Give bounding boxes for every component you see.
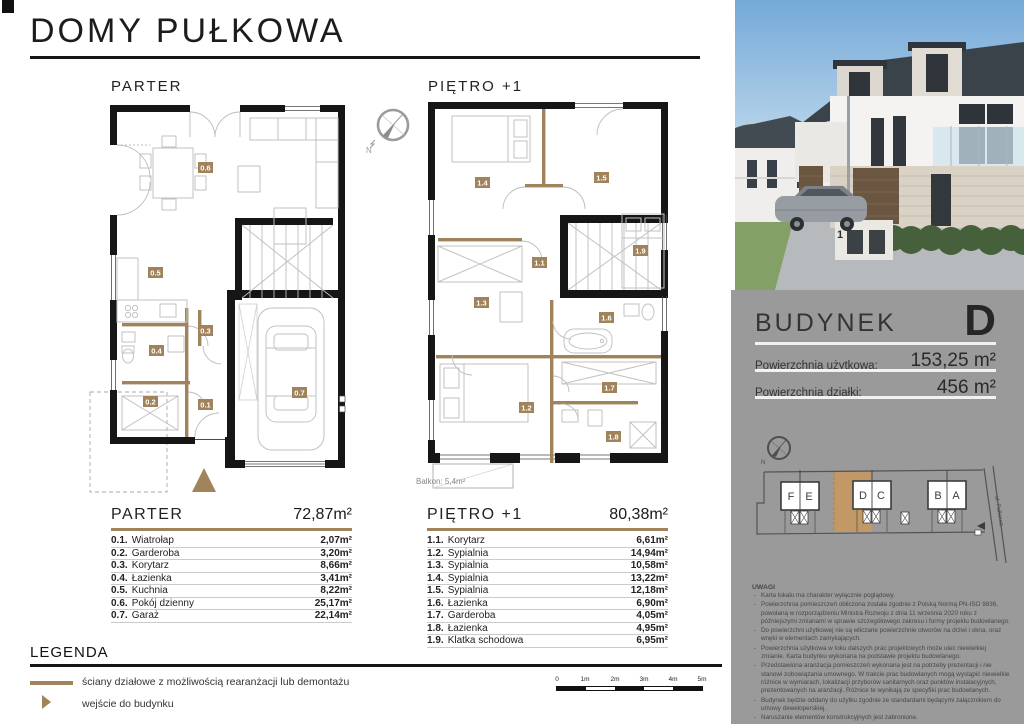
svg-text:0.7: 0.7 bbox=[294, 389, 304, 398]
partition-walls bbox=[122, 308, 201, 437]
scale-label: 4m bbox=[668, 676, 677, 683]
title-rule bbox=[30, 56, 700, 59]
room-tag: 1.7 bbox=[602, 382, 617, 393]
list-item: Do powierzchni użytkowej nie są wliczane… bbox=[752, 627, 1010, 644]
scale-bar-strip bbox=[556, 686, 703, 691]
list-item: Powierzchnia pomieszczeń obliczona zosta… bbox=[752, 601, 1010, 626]
summary-total-area: 72,87m² bbox=[293, 506, 352, 524]
panel-rule bbox=[755, 369, 996, 372]
room-tag: 1.5 bbox=[594, 172, 609, 183]
building-header: BUDYNEK D bbox=[755, 304, 996, 338]
garage bbox=[239, 304, 324, 450]
house-number: 1 bbox=[837, 229, 843, 241]
svg-text:1.3: 1.3 bbox=[476, 299, 486, 308]
site-plan: N bbox=[739, 426, 1019, 578]
sofa-tv bbox=[238, 118, 338, 244]
svg-text:1.6: 1.6 bbox=[601, 314, 611, 323]
corner-mark bbox=[2, 0, 14, 13]
scale-label: 1m bbox=[580, 676, 589, 683]
entrance-arrow-swatch bbox=[42, 695, 51, 709]
notes-list: Karta lokalu ma charakter wyłącznie pogl… bbox=[752, 592, 1010, 722]
site-compass-north-label: N bbox=[761, 460, 765, 466]
table-row: 0.5.Kuchnia8,22m² bbox=[111, 585, 352, 598]
table-row: 1.4.Sypialnia13,22m² bbox=[427, 573, 668, 586]
scale-label: 3m bbox=[639, 676, 648, 683]
svg-text:1.9: 1.9 bbox=[635, 247, 645, 256]
parter-title: PARTER bbox=[111, 78, 182, 95]
partition-wall-swatch bbox=[30, 681, 73, 685]
room-tag: 0.7 bbox=[292, 387, 307, 398]
table-row: 1.7.Garderoba4,05m² bbox=[427, 610, 668, 623]
table-row: 0.6.Pokój dzienny25,17m² bbox=[111, 598, 352, 611]
panel-rule bbox=[755, 342, 996, 345]
summary-title: PARTER bbox=[111, 506, 183, 524]
svg-text:0.2: 0.2 bbox=[145, 398, 155, 407]
summary-rule bbox=[427, 528, 668, 531]
svg-text:1.8: 1.8 bbox=[608, 433, 618, 442]
parter-summary: PARTER 72,87m² 0.1.Wiatrołap2,07m² 0.2.G… bbox=[111, 506, 352, 623]
table-row: 0.1.Wiatrołap2,07m² bbox=[111, 535, 352, 548]
scale-label: 5m bbox=[697, 676, 706, 683]
svg-text:1.5: 1.5 bbox=[596, 174, 606, 183]
entrance-arrow bbox=[192, 468, 216, 492]
site-compass-icon: N bbox=[761, 437, 790, 466]
scale-label: 2m bbox=[610, 676, 619, 683]
legend-item: wejście do budynku bbox=[30, 697, 722, 711]
room-tag: 0.6 bbox=[198, 162, 213, 173]
svg-text:1.4: 1.4 bbox=[477, 179, 488, 188]
site-building-d: D bbox=[859, 490, 867, 502]
svg-text:0.3: 0.3 bbox=[200, 327, 210, 336]
list-item: Budynek będzie oddany do użytku zgodnie … bbox=[752, 697, 1010, 714]
room-tag: 1.6 bbox=[599, 312, 614, 323]
scale-bar: 0 1m 2m 3m 4m 5m bbox=[556, 676, 704, 694]
table-row: 1.1.Korytarz6,61m² bbox=[427, 535, 668, 548]
svg-text:0.6: 0.6 bbox=[200, 164, 210, 173]
site-building-f: F bbox=[788, 491, 795, 503]
room-tag: 0.5 bbox=[148, 267, 163, 278]
room-tag: 0.2 bbox=[143, 396, 158, 407]
table-row: 0.2.Garderoba3,20m² bbox=[111, 548, 352, 561]
legend-item-label: wejście do budynku bbox=[82, 698, 174, 710]
legend-item-label: ściany działowe z możliwością rearanżacj… bbox=[82, 676, 349, 688]
room-tag: 0.3 bbox=[198, 325, 213, 336]
stairs bbox=[568, 223, 661, 290]
svg-text:1.2: 1.2 bbox=[521, 404, 531, 413]
room-tag: 0.1 bbox=[198, 399, 213, 410]
table-row: 1.8.Łazienka4,95m² bbox=[427, 623, 668, 636]
balcony-label: Balkon: 5,4m² bbox=[416, 477, 466, 486]
svg-text:1.1: 1.1 bbox=[534, 259, 544, 268]
site-building-c: C bbox=[877, 490, 885, 502]
pietro-summary: PIĘTRO +1 80,38m² 1.1.Korytarz6,61m² 1.2… bbox=[427, 506, 668, 648]
room-tag: 1.9 bbox=[633, 245, 648, 256]
floorplan-card-page: DOMY PUŁKOWA PARTER PIĘTRO +1 N bbox=[0, 0, 1024, 724]
table-row: 0.7.Garaż22,14m² bbox=[111, 610, 352, 623]
floorplan-pietro: Balkon: 5,4m² bbox=[412, 96, 674, 498]
site-building-e: E bbox=[805, 491, 812, 503]
garage-door bbox=[245, 462, 325, 467]
windows bbox=[112, 107, 321, 391]
room-tag: 1.1 bbox=[532, 257, 547, 268]
stairs bbox=[242, 225, 333, 298]
site-entrance-marker bbox=[977, 522, 985, 530]
compass-icon: N bbox=[364, 104, 412, 154]
pietro-title: PIĘTRO +1 bbox=[428, 78, 523, 95]
site-building-a: A bbox=[952, 490, 960, 502]
list-item: Powierzchnia użytkowa w toku dalszych pr… bbox=[752, 645, 1010, 662]
summary-total-area: 80,38m² bbox=[609, 506, 668, 524]
building-photo: 1 bbox=[735, 0, 1024, 290]
room-tag: 1.2 bbox=[519, 402, 534, 413]
room-tag: 0.4 bbox=[149, 345, 164, 356]
svg-text:0.5: 0.5 bbox=[150, 269, 160, 278]
notes-title: UWAGI bbox=[752, 584, 1010, 591]
svg-text:0.4: 0.4 bbox=[151, 347, 162, 356]
panel-rule bbox=[755, 396, 996, 399]
building-letter: D bbox=[964, 304, 996, 338]
balcony: Balkon: 5,4m² bbox=[416, 464, 513, 488]
list-item: Naruszanie elementów konstrukcyjnych jes… bbox=[752, 714, 1010, 722]
room-tag: 1.4 bbox=[475, 177, 490, 188]
building-label: BUDYNEK bbox=[755, 309, 897, 338]
table-row: 0.3.Korytarz8,66m² bbox=[111, 560, 352, 573]
table-row: 1.2.Sypialnia14,94m² bbox=[427, 548, 668, 561]
table-row: 1.5.Sypialnia12,18m² bbox=[427, 585, 668, 598]
compass-north-label: N bbox=[366, 146, 372, 154]
room-tag: 1.8 bbox=[606, 431, 621, 442]
windows bbox=[430, 104, 667, 460]
notes-section: UWAGI Karta lokalu ma charakter wyłączni… bbox=[752, 584, 1010, 723]
site-building-b: B bbox=[934, 490, 941, 502]
table-row: 1.6.Łazienka6,90m² bbox=[427, 598, 668, 611]
door-arcs bbox=[117, 112, 240, 440]
page-title: DOMY PUŁKOWA bbox=[30, 12, 346, 51]
table-row: 1.3.Sypialnia10,58m² bbox=[427, 560, 668, 573]
scale-label: 0 bbox=[555, 676, 559, 683]
list-item: Przedstawiona aranżacja pomieszczeń wyko… bbox=[752, 662, 1010, 695]
svg-text:0.1: 0.1 bbox=[200, 401, 210, 410]
svg-text:1.7: 1.7 bbox=[604, 384, 614, 393]
table-row: 0.4.Łazienka3,41m² bbox=[111, 573, 352, 586]
list-item: Karta lokalu ma charakter wyłącznie pogl… bbox=[752, 592, 1010, 600]
street-label: ul. Pułkowa bbox=[993, 495, 1004, 527]
legend-rule bbox=[30, 664, 722, 667]
room-tag: 1.3 bbox=[474, 297, 489, 308]
legend-title: LEGENDA bbox=[30, 644, 722, 661]
summary-rule bbox=[111, 528, 352, 531]
summary-title: PIĘTRO +1 bbox=[427, 506, 523, 524]
info-panel: BUDYNEK D Powierzchnia użytkowa: 153,25 … bbox=[731, 290, 1024, 724]
floorplan-parter: 0.6 0.5 0.3 0.4 0.2 0.1 0.7 bbox=[88, 96, 360, 498]
